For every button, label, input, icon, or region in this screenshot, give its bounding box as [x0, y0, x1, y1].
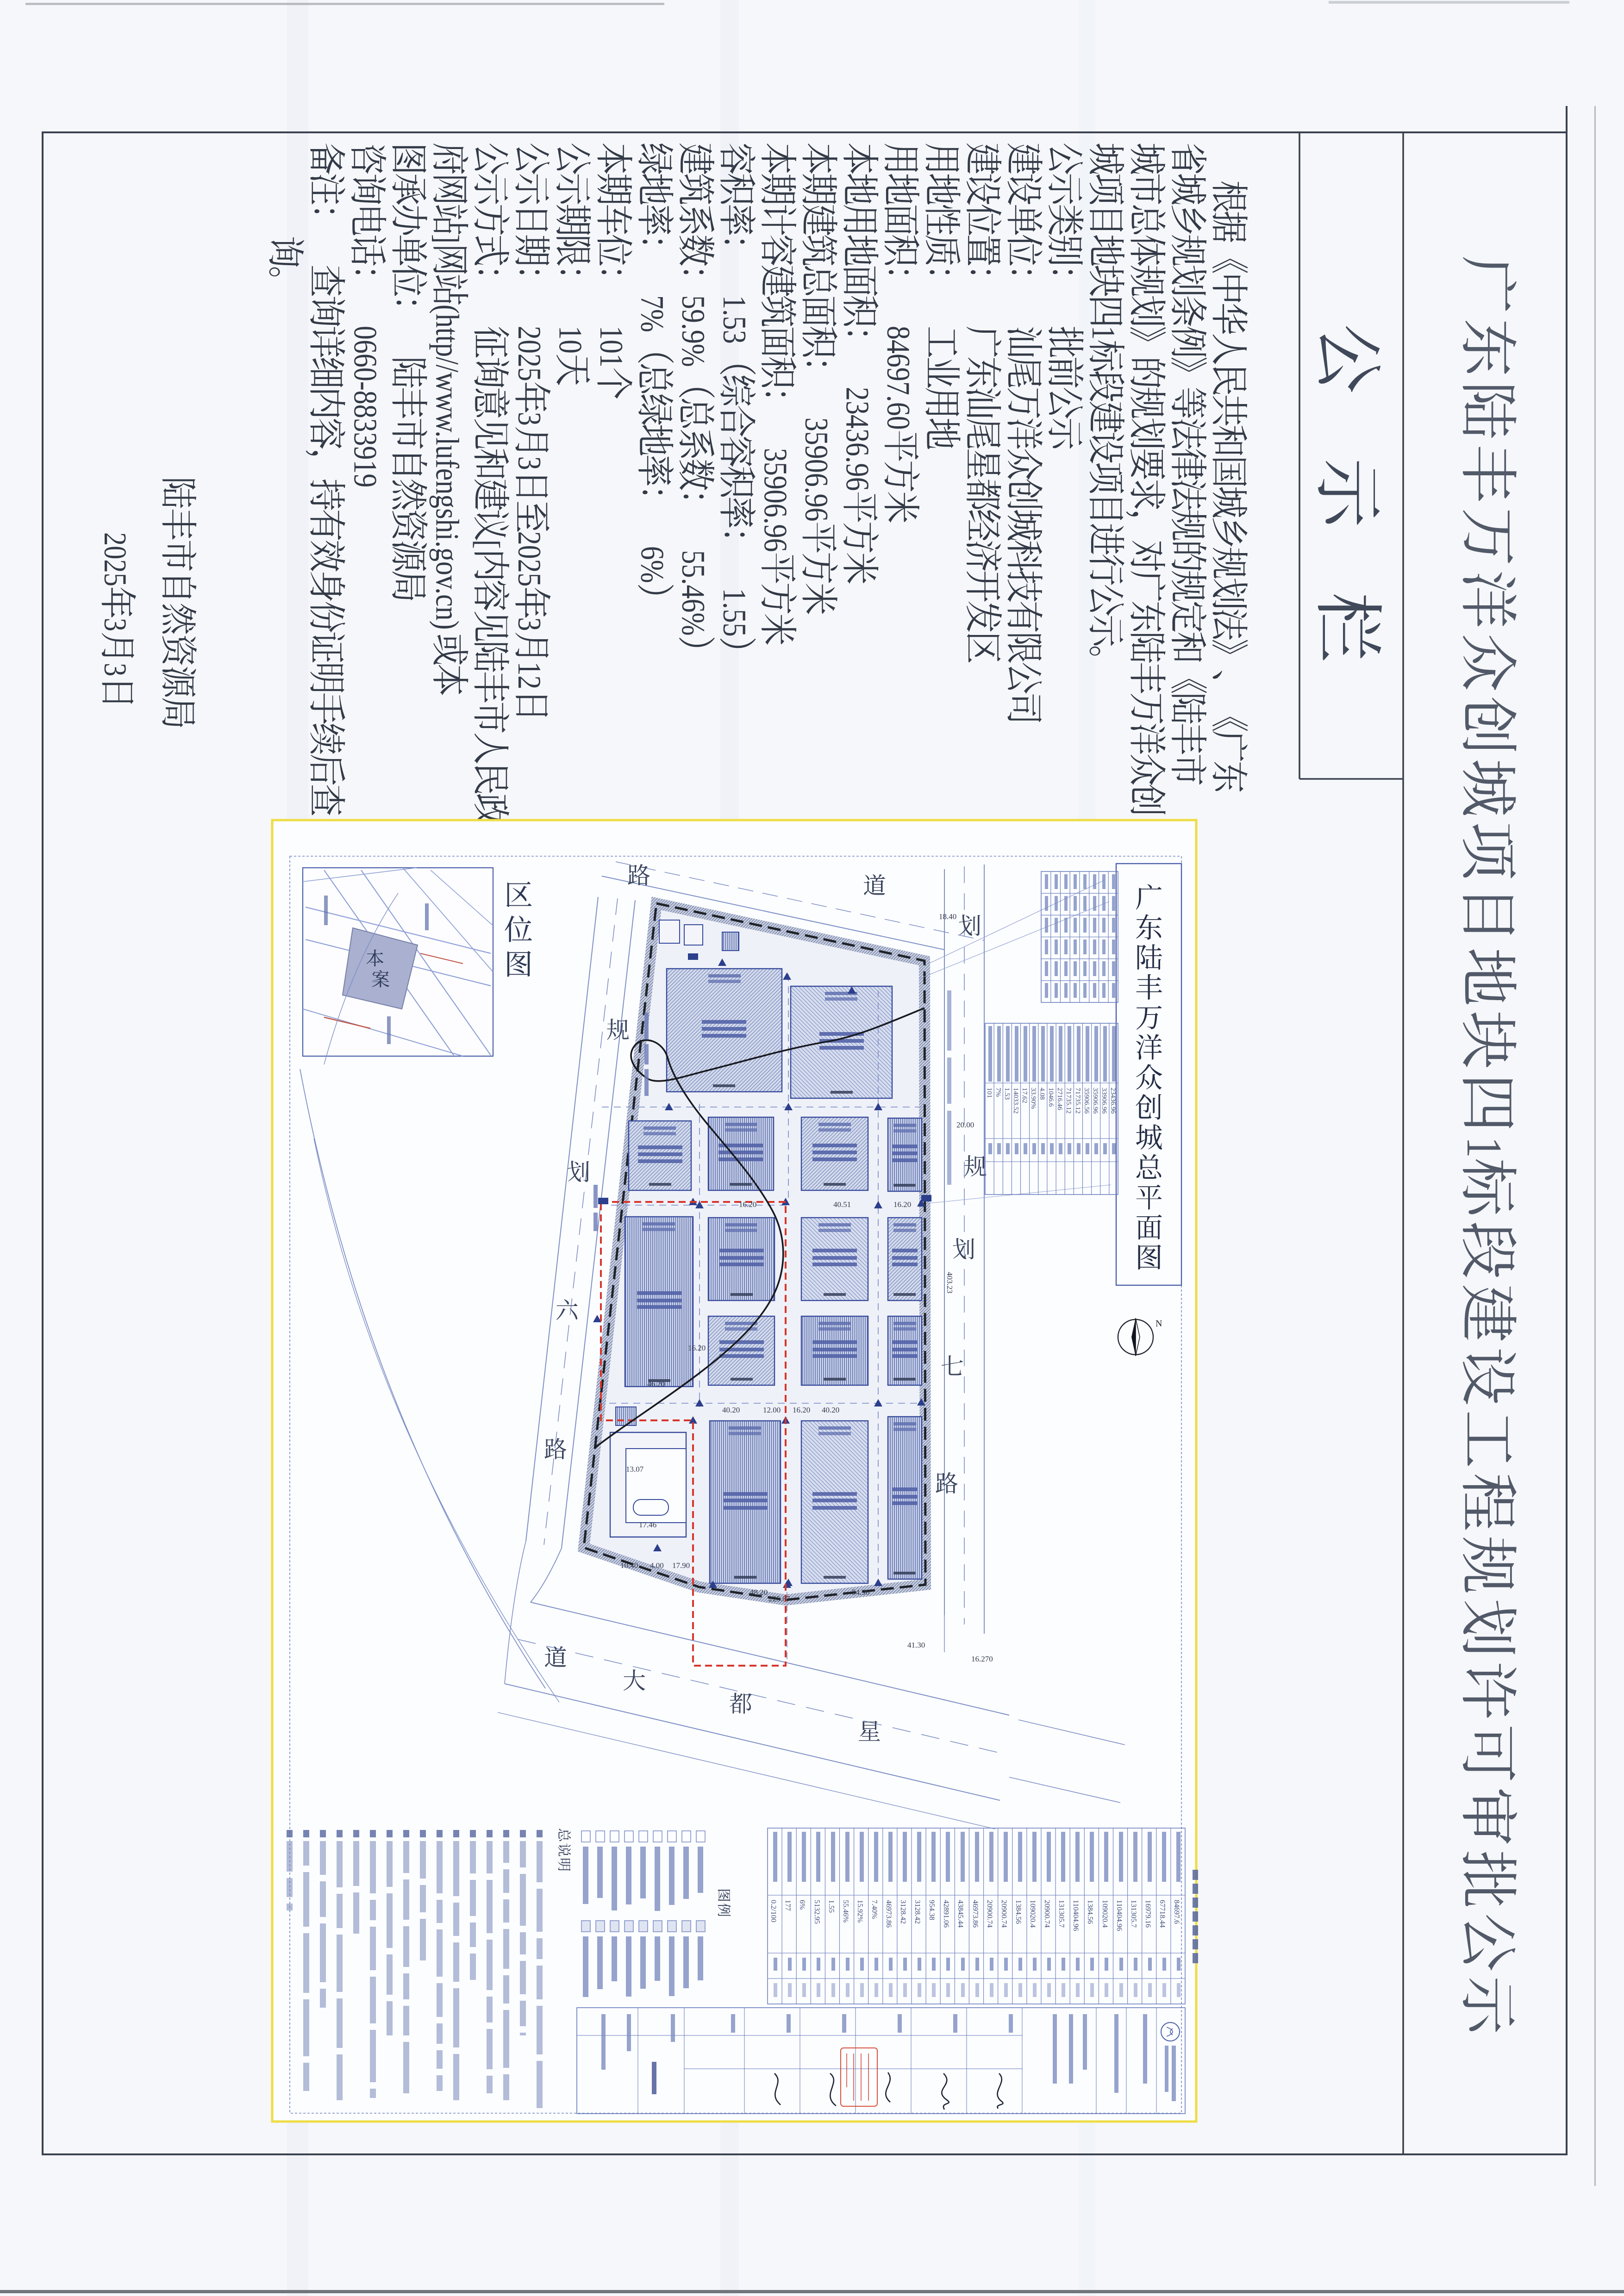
svg-text:1.55: 1.55 [827, 1900, 835, 1913]
svg-text:16.20: 16.20 [793, 1406, 810, 1414]
svg-text:16.20: 16.20 [739, 1200, 756, 1209]
svg-text:3: 3 [511, 617, 547, 631]
svg-text:131305.7: 131305.7 [1057, 1900, 1065, 1928]
svg-text:33906.96: 33906.96 [1100, 1088, 1108, 1114]
svg-text:46973.86: 46973.86 [971, 1900, 979, 1928]
svg-text:40.51: 40.51 [833, 1200, 851, 1209]
svg-text:109020.4: 109020.4 [1029, 1900, 1037, 1928]
svg-text:40.20: 40.20 [822, 1406, 839, 1414]
svg-text:110404.96: 110404.96 [1072, 1900, 1080, 1931]
svg-text:3: 3 [511, 412, 547, 426]
svg-text:101: 101 [986, 1088, 993, 1098]
svg-text:15.92%: 15.92% [856, 1900, 864, 1923]
svg-text:23436.96: 23436.96 [839, 387, 875, 491]
svg-text:101: 101 [593, 326, 629, 367]
svg-text:7.40%: 7.40% [870, 1900, 878, 1919]
svg-text:2025: 2025 [511, 326, 547, 381]
svg-text:1.55: 1.55 [716, 588, 752, 637]
svg-text:10: 10 [552, 326, 588, 354]
svg-text:20900.74: 20900.74 [1000, 1900, 1008, 1928]
svg-text:16.270: 16.270 [971, 1655, 993, 1663]
svg-text:10.40: 10.40 [620, 1561, 638, 1570]
svg-text:110404.96: 110404.96 [1115, 1900, 1123, 1931]
svg-text:4.00: 4.00 [650, 1561, 664, 1570]
svg-text:16979.16: 16979.16 [1144, 1900, 1152, 1928]
svg-text:4.08: 4.08 [1038, 1088, 1046, 1100]
svg-text:16.20: 16.20 [893, 1200, 911, 1209]
svg-text:84697.60: 84697.60 [880, 326, 916, 430]
svg-text:5132.95: 5132.95 [813, 1900, 821, 1924]
svg-text:3128.42: 3128.42 [913, 1900, 921, 1924]
svg-text:35906.96: 35906.96 [798, 417, 834, 522]
svg-text:7%: 7% [634, 295, 670, 332]
svg-text:71735.12: 71735.12 [1065, 1088, 1072, 1114]
svg-text:18.40: 18.40 [939, 912, 956, 921]
svg-text:1: 1 [1456, 1137, 1512, 1158]
svg-text:3128.42: 3128.42 [899, 1900, 907, 1924]
svg-text:1384.56: 1384.56 [1014, 1900, 1022, 1924]
svg-text:17.90: 17.90 [672, 1561, 690, 1570]
svg-text:12.00: 12.00 [763, 1406, 781, 1414]
svg-text:3: 3 [511, 456, 547, 470]
svg-text:131305.7: 131305.7 [1130, 1900, 1137, 1928]
svg-text:41.30: 41.30 [907, 1641, 925, 1649]
svg-text:20.00: 20.00 [956, 1120, 974, 1129]
svg-text:0.2/100: 0.2/100 [769, 1900, 777, 1922]
svg-text:35906.96: 35906.96 [757, 448, 793, 552]
svg-text:55.46%: 55.46% [675, 550, 711, 636]
svg-text:16.20: 16.20 [688, 1344, 706, 1352]
svg-text:6%: 6% [798, 1900, 806, 1910]
svg-text:35906.56: 35906.56 [1083, 1088, 1090, 1114]
svg-text:1.53: 1.53 [716, 295, 752, 344]
svg-text:71735.12: 71735.12 [1074, 1088, 1081, 1114]
svg-text:N: N [1156, 1319, 1162, 1329]
svg-text:2025: 2025 [98, 532, 133, 586]
svg-text:2025: 2025 [511, 531, 547, 587]
svg-text:20900.74: 20900.74 [1043, 1900, 1051, 1928]
svg-text:3: 3 [98, 618, 133, 631]
svg-text:0660-8833919: 0660-8833919 [347, 326, 383, 487]
svg-text:55.46%: 55.46% [842, 1900, 849, 1923]
svg-text:84697.6: 84697.6 [1173, 1900, 1181, 1924]
svg-text:1.53: 1.53 [1003, 1088, 1011, 1100]
svg-text:[: [ [470, 540, 506, 549]
svg-text:48.20: 48.20 [750, 1588, 768, 1597]
svg-text:17.62: 17.62 [1021, 1088, 1028, 1103]
svg-text:(http//www.lufengshi.gov.cn): (http//www.lufengshi.gov.cn) [429, 305, 465, 630]
svg-text:1: 1 [1085, 326, 1121, 340]
svg-text:54.96: 54.96 [852, 1588, 869, 1597]
svg-text:2716.46: 2716.46 [1056, 1088, 1063, 1110]
svg-text:42891.06: 42891.06 [942, 1900, 950, 1928]
svg-text:13.07: 13.07 [626, 1465, 644, 1474]
svg-text:67718.44: 67718.44 [1158, 1900, 1166, 1928]
svg-text:40.20: 40.20 [722, 1406, 740, 1414]
svg-text:46.20: 46.20 [647, 1380, 665, 1388]
svg-text:35906.96: 35906.96 [1092, 1088, 1099, 1114]
svg-text:17.46: 17.46 [639, 1520, 656, 1529]
svg-text:7%: 7% [994, 1088, 1002, 1097]
svg-text:225.87: 225.87 [768, 1594, 790, 1603]
svg-text:14033.52: 14033.52 [1012, 1088, 1019, 1114]
svg-text:954.38: 954.38 [928, 1900, 936, 1920]
svg-text:1384.56: 1384.56 [1086, 1900, 1094, 1924]
svg-text:3: 3 [98, 663, 133, 676]
svg-text:20900.74: 20900.74 [986, 1900, 993, 1928]
svg-text:43845.44: 43845.44 [956, 1900, 964, 1928]
svg-text:1046.6: 1046.6 [1047, 1088, 1055, 1107]
svg-text:6%: 6% [634, 546, 670, 583]
svg-text:12: 12 [511, 662, 547, 690]
svg-text:177: 177 [784, 1900, 792, 1911]
svg-text:59.9%: 59.9% [675, 295, 711, 367]
svg-text:46973.86: 46973.86 [885, 1900, 893, 1928]
svg-text:403.23: 403.23 [945, 1272, 954, 1294]
svg-text:33.90%: 33.90% [1030, 1088, 1037, 1109]
svg-text:109020.4: 109020.4 [1101, 1900, 1109, 1928]
svg-text:]: ] [429, 234, 465, 243]
svg-text:23436.96: 23436.96 [1109, 1088, 1117, 1114]
